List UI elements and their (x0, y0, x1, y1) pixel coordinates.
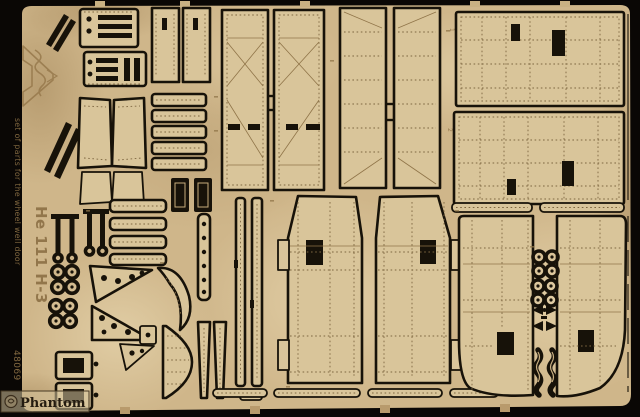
comb-part-b (84, 52, 146, 86)
aircraft-title-etching: He 111 H-3 (32, 206, 50, 304)
product-code-etching: 48069 (11, 350, 21, 381)
grid-panel-2: 2 (446, 112, 624, 204)
comb-part-a (80, 9, 138, 47)
panel-2-label: 2 (446, 128, 453, 132)
watermark-text: Phantom (20, 396, 86, 411)
side-caption-etching: set of parts for the wheel well door (13, 118, 22, 266)
grid-panel-1: 1 (448, 12, 624, 106)
bar-stack-parts (152, 94, 206, 170)
lower-panel-right (557, 216, 626, 396)
photo-frame: 1 2 (0, 0, 640, 417)
watermark-emblem (5, 396, 17, 408)
bottom-strip-parts (213, 389, 498, 397)
lower-panel-left (459, 216, 533, 396)
watermark: Phantom (1, 391, 89, 412)
wheel-door-left (278, 196, 362, 383)
photo-etch-fret-photo: 1 2 (0, 0, 640, 417)
brace-door-panels (222, 10, 324, 190)
